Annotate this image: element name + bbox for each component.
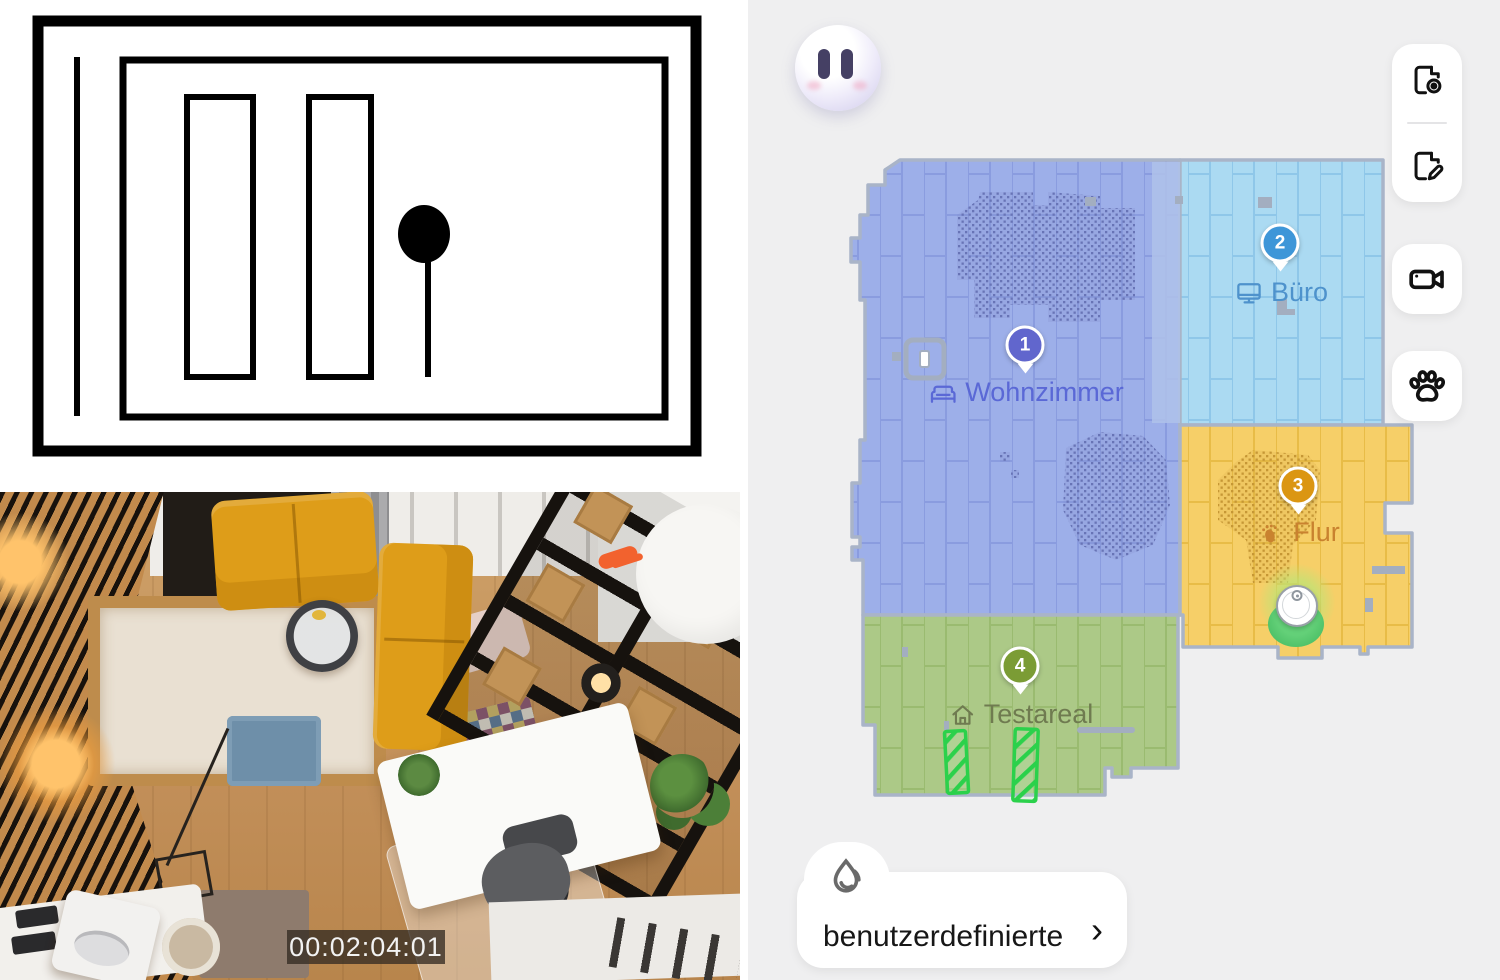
carpet-debris: [1011, 470, 1019, 478]
fruit-bowl: [312, 610, 326, 620]
path-diagram: [0, 0, 740, 490]
yellow-loveseat: [210, 492, 379, 612]
camera-button[interactable]: [1392, 244, 1462, 314]
avatar-eye: [841, 49, 853, 79]
room-label-text: Flur: [1293, 517, 1340, 548]
blue-rug: [227, 716, 321, 786]
map-tools-card: [1392, 44, 1462, 202]
room-pin-3[interactable]: 3: [1279, 467, 1318, 506]
room-pin-2[interactable]: 2: [1261, 224, 1300, 263]
room-pin-number: 4: [1015, 655, 1026, 677]
chevron-right-icon[interactable]: ›: [1091, 912, 1103, 948]
paw-icon: [1406, 365, 1448, 407]
carpet-debris: [1000, 452, 1010, 462]
carpet-wohnzimmer-round: [1063, 432, 1170, 560]
water-drop-icon: [823, 855, 869, 901]
no-go-zone-2[interactable]: [1013, 729, 1038, 802]
screenshot-root: 00:02:04:01: [0, 0, 1500, 980]
robot-app-panel: 1 2 3 4 Wohnzimmer Büro: [748, 0, 1500, 980]
camera-view-panel: 00:02:04:01: [0, 492, 740, 980]
robot-avatar-pause[interactable]: [795, 25, 881, 111]
diagram-robot-dot: [398, 205, 450, 263]
room-pin-4[interactable]: 4: [1001, 647, 1040, 686]
pet-mode-button[interactable]: [1392, 351, 1462, 421]
room-label-flur[interactable]: Flur: [1258, 517, 1340, 548]
toolbar-divider: [1407, 122, 1447, 124]
house-icon: [949, 701, 977, 729]
storage-box: [573, 492, 633, 544]
room-label-testareal[interactable]: Testareal: [949, 699, 1094, 730]
lds-turret: [1292, 590, 1303, 601]
room-label-text: Büro: [1271, 277, 1328, 308]
monitor-icon: [1234, 278, 1264, 308]
map-eye-icon: [1409, 62, 1445, 98]
desk-plant: [398, 754, 440, 796]
avatar-cheek: [853, 81, 867, 90]
timecode-overlay: 00:02:04:01: [287, 930, 445, 964]
robot-vacuum-marker[interactable]: [1276, 585, 1318, 627]
storage-box: [525, 563, 585, 623]
sofa-icon: [928, 378, 958, 408]
camera-icon: [1407, 259, 1447, 299]
room-label-wohnzimmer[interactable]: Wohnzimmer: [928, 377, 1124, 408]
room-label-buero[interactable]: Büro: [1234, 277, 1328, 308]
map-view-toggle-button[interactable]: [1405, 58, 1449, 102]
diagram-outer-wall: [38, 21, 696, 451]
map-edit-icon: [1409, 148, 1445, 184]
avatar-cheek: [807, 81, 821, 90]
custom-mode-card[interactable]: benutzerdefinierte ›: [797, 872, 1127, 968]
custom-mode-label: benutzerdefinierte: [823, 920, 1063, 954]
pendant-lamp: [0, 704, 116, 824]
room-label-text: Wohnzimmer: [965, 377, 1124, 408]
floor-map: [748, 0, 1500, 980]
room-pin-number: 2: [1275, 232, 1286, 254]
pet-bowl: [162, 918, 220, 976]
path-diagram-panel: [0, 0, 740, 490]
footprints-icon: [1258, 519, 1286, 547]
no-go-zone-1[interactable]: [944, 730, 968, 793]
desk-lamp: [578, 660, 624, 706]
storage-box: [482, 646, 542, 706]
room-label-text: Testareal: [984, 699, 1094, 730]
room-pin-number: 1: [1020, 334, 1031, 356]
room-pin-number: 3: [1293, 475, 1304, 497]
avatar-eye: [818, 49, 830, 79]
map-edit-button[interactable]: [1405, 144, 1449, 188]
potted-plant: [650, 754, 714, 818]
room-pin-1[interactable]: 1: [1006, 326, 1045, 365]
